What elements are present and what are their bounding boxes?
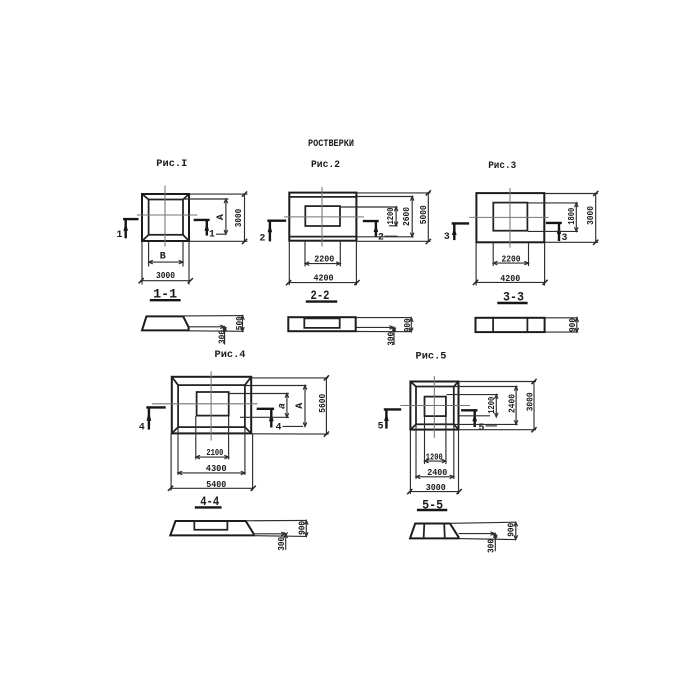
svg-text:5: 5 [378, 420, 384, 431]
svg-text:5000: 5000 [418, 205, 429, 224]
svg-text:4: 4 [139, 421, 145, 432]
svg-text:2: 2 [260, 233, 266, 244]
svg-text:1: 1 [209, 228, 215, 239]
svg-text:2400: 2400 [507, 394, 518, 413]
svg-text:1200: 1200 [426, 452, 443, 463]
svg-text:3: 3 [444, 231, 450, 242]
svg-text:500: 500 [234, 316, 245, 330]
svg-text:3000: 3000 [156, 270, 175, 281]
svg-text:5400: 5400 [206, 479, 226, 490]
svg-text:5600: 5600 [317, 394, 328, 413]
svg-text:4: 4 [276, 421, 282, 432]
svg-text:2100: 2100 [206, 447, 223, 458]
svg-text:РОСТВЕРКИ: РОСТВЕРКИ [308, 139, 354, 150]
svg-text:Рис.2: Рис.2 [311, 159, 340, 171]
svg-text:A: A [295, 403, 306, 409]
svg-text:2200: 2200 [502, 254, 521, 265]
svg-text:300: 300 [276, 537, 287, 551]
svg-text:900: 900 [505, 523, 516, 537]
svg-text:300: 300 [485, 539, 496, 553]
svg-text:a: a [278, 403, 289, 409]
svg-text:1200: 1200 [486, 397, 497, 414]
svg-text:3000: 3000 [585, 206, 596, 225]
svg-text:Рис.4: Рис.4 [215, 349, 246, 361]
svg-text:Рис.5: Рис.5 [416, 350, 447, 362]
svg-text:900: 900 [567, 318, 578, 332]
svg-text:3: 3 [562, 232, 568, 243]
svg-text:Рис.3: Рис.3 [488, 160, 516, 172]
svg-text:2600: 2600 [401, 207, 412, 226]
svg-text:A: A [216, 214, 227, 220]
svg-text:В: В [160, 252, 166, 263]
svg-text:3000: 3000 [426, 482, 446, 493]
svg-text:5: 5 [479, 422, 485, 433]
svg-text:2400: 2400 [427, 467, 447, 478]
svg-text:4200: 4200 [314, 273, 334, 284]
svg-text:300: 300 [386, 332, 397, 346]
svg-text:4300: 4300 [206, 463, 227, 474]
svg-text:1: 1 [116, 229, 122, 240]
svg-text:Рис.I: Рис.I [156, 158, 187, 170]
svg-text:900: 900 [402, 318, 413, 332]
svg-text:300: 300 [216, 330, 227, 344]
svg-text:4200: 4200 [500, 273, 520, 284]
svg-text:3000: 3000 [233, 209, 244, 228]
svg-text:2200: 2200 [314, 254, 334, 265]
svg-text:1800: 1800 [566, 208, 577, 225]
svg-text:3000: 3000 [524, 392, 535, 411]
svg-text:900: 900 [296, 521, 307, 535]
svg-text:1200: 1200 [385, 207, 396, 224]
